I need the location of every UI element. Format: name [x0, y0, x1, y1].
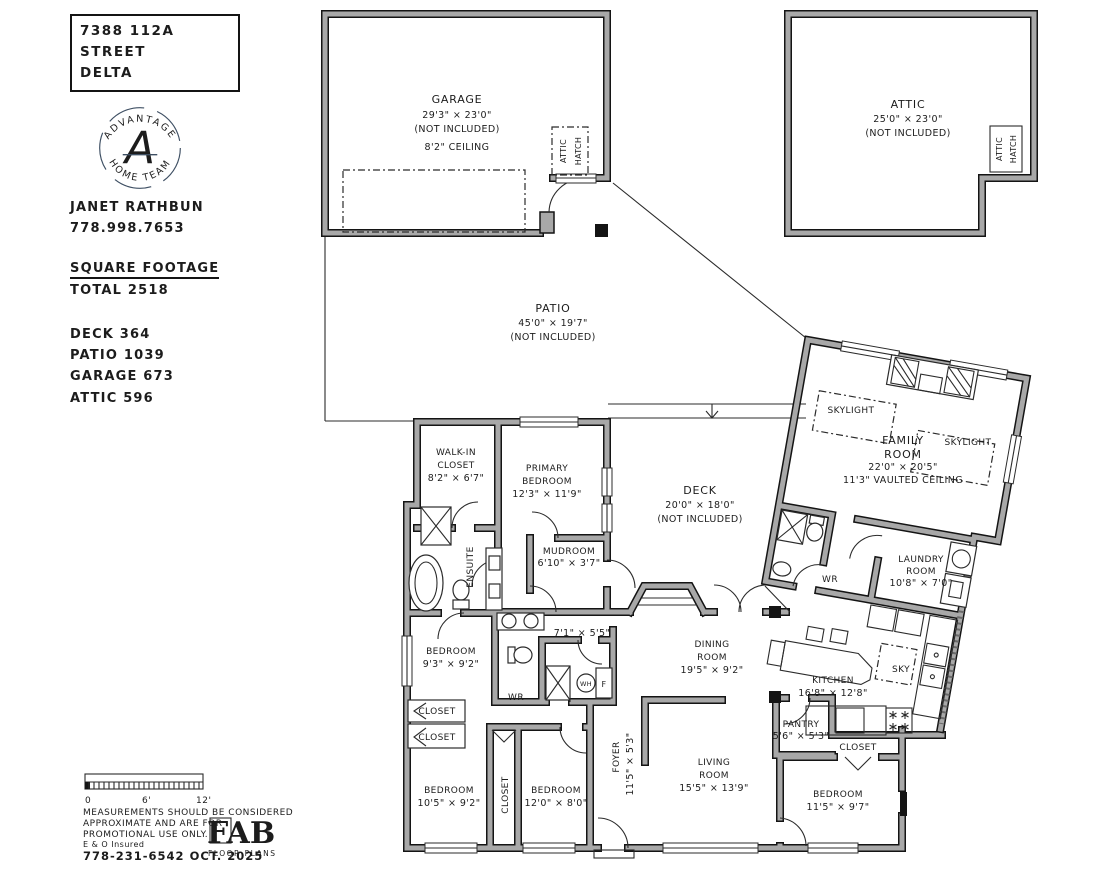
fab-logo: FAB FLOOR PLANS — [207, 816, 277, 858]
bathroom-fixtures: WH F — [497, 613, 612, 700]
laundry-label2: ROOM — [906, 567, 936, 577]
garage-door-arc — [549, 179, 584, 212]
island-sink-icon — [767, 640, 785, 666]
sink-icon — [772, 560, 792, 577]
bay-window-glazing — [637, 598, 697, 605]
bedroom4-dims: 12'0" × 8'0" — [525, 798, 588, 809]
bedroom2-label: BEDROOM — [426, 647, 476, 657]
toilet-icon — [514, 647, 532, 663]
closet-label: CLOSET — [501, 776, 511, 813]
family-room-dims: 22'0" × 20'5" — [868, 462, 937, 473]
disclaimer-line2: APPROXIMATE AND ARE FOR — [83, 819, 223, 829]
garage: ATTIC HATCH GARAGE 29'3" × 23'0" (NOT IN… — [325, 14, 608, 237]
laundry-label1: LAUNDRY — [898, 555, 944, 565]
skylight-label: SKYLIGHT — [828, 406, 875, 416]
garage-note: (NOT INCLUDED) — [414, 124, 499, 135]
dining-dims: 19'5" × 9'2" — [681, 665, 744, 676]
garage-door-outline — [343, 170, 525, 232]
post-icon — [769, 606, 781, 618]
furnace-label: F — [602, 680, 607, 689]
bedroom3-label: BEDROOM — [424, 786, 474, 796]
rotated-wing — [745, 335, 1032, 734]
scale-0: 0 — [85, 796, 91, 806]
fab-logo-name: FAB — [207, 816, 275, 851]
walk-in-dims: 8'2" × 6'7" — [428, 473, 485, 484]
patio-label: PATIO — [535, 302, 570, 315]
primary-label1: PRIMARY — [526, 464, 568, 474]
attic-hatch-label2: HATCH — [1009, 135, 1018, 163]
post-icon — [769, 691, 781, 703]
patio: PATIO 45'0" × 19'7" (NOT INCLUDED) — [325, 183, 806, 421]
door-leaf — [900, 792, 907, 816]
walk-in-label2: CLOSET — [437, 461, 474, 471]
primary-dims: 12'3" × 11'9" — [512, 489, 581, 500]
sink-icon — [924, 643, 949, 667]
bedroom5-dims: 11'5" × 9'7" — [807, 802, 870, 813]
skylight-label: SKYLIGHT — [945, 438, 992, 448]
pantry-label: PANTRY — [783, 720, 820, 730]
dining-label2: ROOM — [697, 653, 727, 663]
wr-dims: 7'1" × 5'5" — [554, 628, 611, 639]
family-room-ceiling: 11'3" VAULTED CEILING — [843, 475, 963, 486]
scale-12: 12' — [196, 796, 211, 806]
laundry-dims: 10'8" × 7'0" — [890, 578, 953, 589]
living-label2: ROOM — [699, 771, 729, 781]
walk-in-label1: WALK-IN — [436, 448, 476, 458]
bathtub-icon — [409, 555, 443, 611]
stool-icon — [830, 629, 848, 645]
fridge-icon — [836, 708, 864, 733]
family-room-label1: FAMILY — [882, 434, 924, 447]
sink-icon — [920, 665, 945, 689]
deck-dims: 20'0" × 18'0" — [665, 500, 734, 511]
patio-note: (NOT INCLUDED) — [510, 332, 595, 343]
post-icon — [595, 224, 608, 237]
scale-bar: 0 6' 12' — [85, 774, 211, 806]
kitchen-dims: 16'8" × 12'8" — [798, 688, 867, 699]
fab-logo-subtitle: FLOOR PLANS — [208, 849, 277, 858]
bedroom2-dims: 9'3" × 9'2" — [423, 659, 480, 670]
patio-dims: 45'0" × 19'7" — [518, 318, 587, 329]
foyer-label: FOYER — [612, 741, 622, 772]
garage-attic-hatch-label1: ATTIC — [559, 139, 568, 163]
bedroom5-label: BEDROOM — [813, 790, 863, 800]
garage-attic-hatch-label2: HATCH — [574, 137, 583, 165]
garage-dims: 29'3" × 23'0" — [422, 110, 491, 121]
closet-label: CLOSET — [418, 733, 455, 743]
deck-label: DECK — [683, 484, 717, 497]
garage-label: GARAGE — [432, 93, 483, 106]
mudroom-dims: 6'10" × 3'7" — [538, 558, 601, 569]
garage-pillar — [540, 212, 554, 233]
sink-icon — [502, 614, 516, 628]
primary-label2: BEDROOM — [522, 477, 572, 487]
stool-icon — [806, 626, 824, 642]
attic-note: (NOT INCLUDED) — [865, 128, 950, 139]
attic: ATTIC HATCH ATTIC 25'0" × 23'0" (NOT INC… — [788, 14, 1034, 233]
water-heater-label: WH — [580, 680, 592, 688]
sky-label: SKY — [892, 665, 910, 675]
ensuite-fixtures — [409, 507, 502, 611]
closet-label: CLOSET — [418, 707, 455, 717]
deck-note: (NOT INCLUDED) — [657, 514, 742, 525]
living-dims: 15'5" × 13'9" — [679, 783, 748, 794]
kitchen-label: KITCHEN — [812, 676, 854, 686]
sink-icon — [524, 614, 538, 628]
family-room-label2: ROOM — [884, 448, 922, 461]
fireplace-icon — [886, 355, 978, 400]
wr-label: WR — [508, 693, 524, 703]
sink-icon — [489, 556, 500, 570]
floor-plan-drawing: ATTIC HATCH GARAGE 29'3" × 23'0" (NOT IN… — [0, 0, 1108, 871]
mudroom-label: MUDROOM — [543, 547, 595, 557]
bedroom3-dims: 10'5" × 9'2" — [418, 798, 481, 809]
insured-line: E & O Insured — [83, 840, 145, 849]
ensuite-label: ENSUITE — [466, 546, 476, 587]
closet-label: CLOSET — [839, 743, 876, 753]
washer-icon — [946, 542, 977, 576]
foyer-dims: 11'5" × 5'3" — [625, 733, 636, 796]
living-label1: LIVING — [698, 758, 731, 768]
wr-wing-label: WR — [822, 575, 838, 585]
attic-label: ATTIC — [891, 98, 926, 111]
scale-6: 6' — [142, 796, 151, 806]
attic-dims: 25'0" × 23'0" — [873, 114, 942, 125]
dining-label1: DINING — [694, 640, 729, 650]
disclaimer-line3: PROMOTIONAL USE ONLY. — [83, 830, 208, 840]
bedroom4-label: BEDROOM — [531, 786, 581, 796]
pantry-dims: 5'6" × 5'3" — [773, 731, 830, 742]
sink-icon — [489, 584, 500, 598]
attic-hatch-label1: ATTIC — [995, 137, 1004, 161]
floor-plan-page: 7388 112A STREET DELTA ADVANTAGE HOME TE… — [0, 0, 1108, 871]
garage-ceiling: 8'2" CEILING — [425, 142, 490, 153]
